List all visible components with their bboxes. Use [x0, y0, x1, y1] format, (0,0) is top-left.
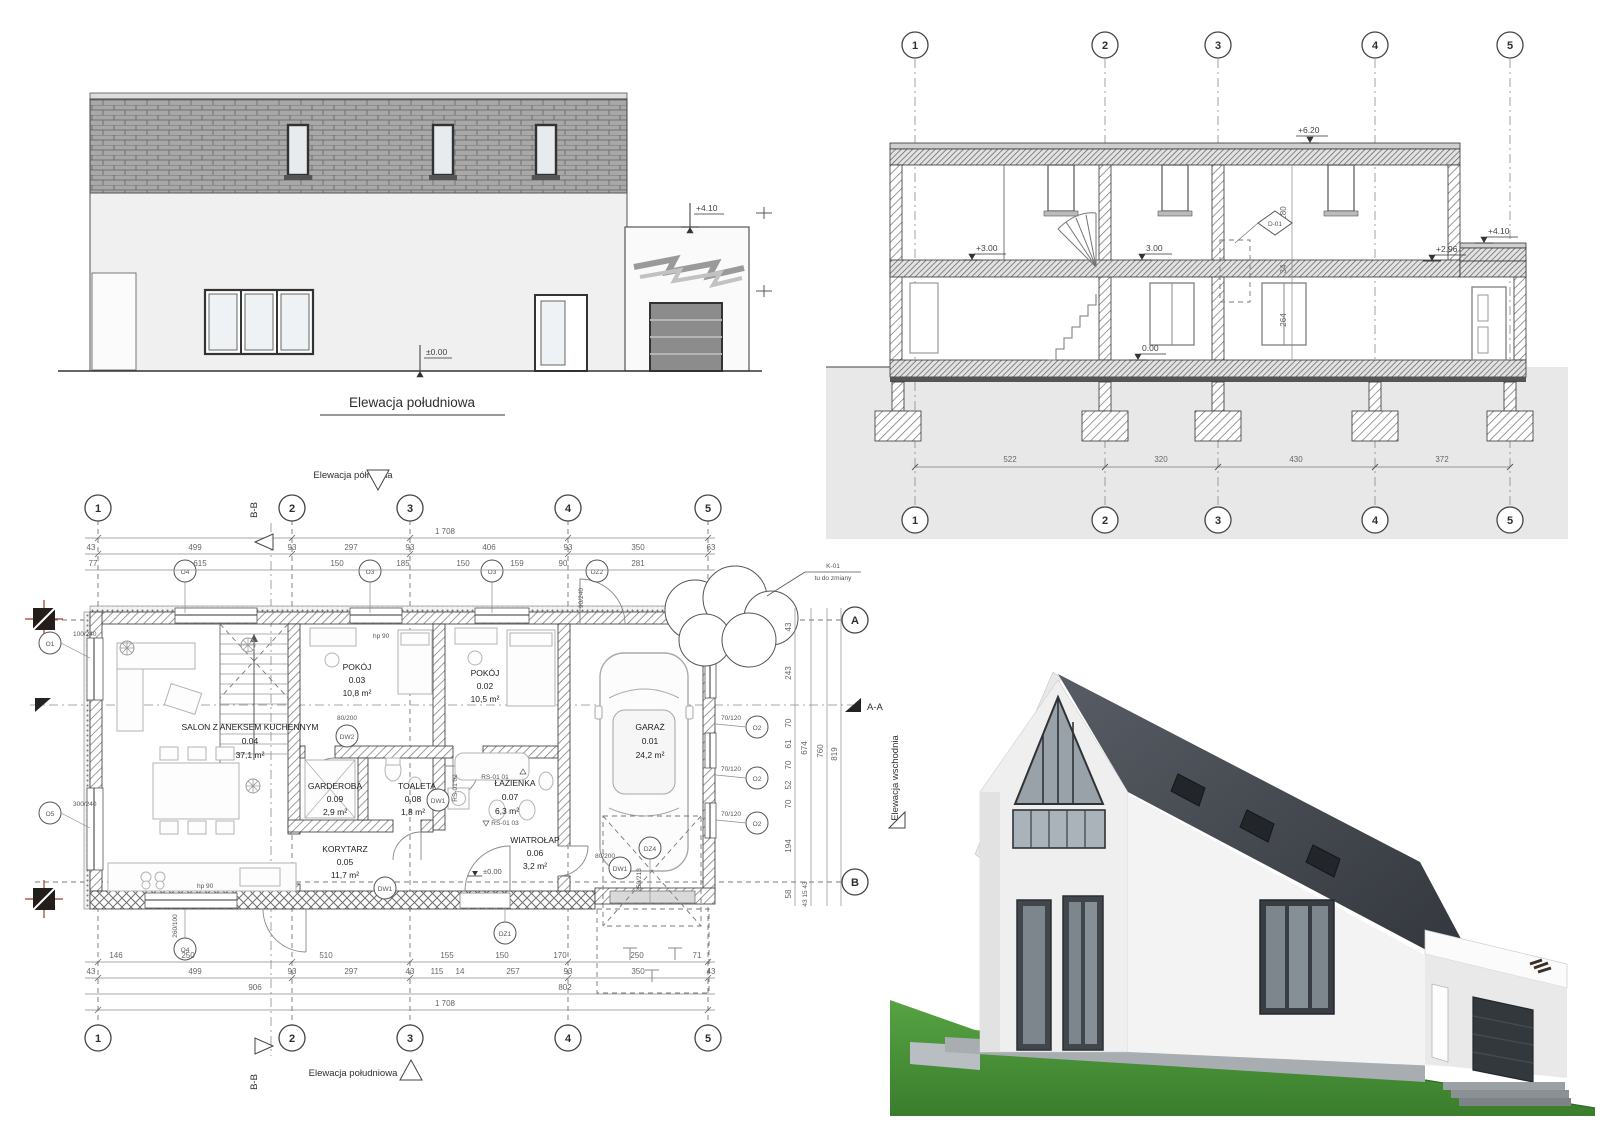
- render-annex-door: [1432, 984, 1448, 1062]
- grid-bubble-label: 4: [1372, 515, 1379, 527]
- dim: 43: [87, 543, 96, 552]
- room-num: 0.01: [642, 736, 659, 746]
- elevation-door: [535, 295, 587, 371]
- grid-bubble-label: 3: [1215, 40, 1221, 52]
- dim: 43 15 43: [802, 881, 809, 907]
- dim: 115: [431, 967, 444, 976]
- dim-total: 674: [800, 741, 809, 755]
- dim-total: 760: [816, 744, 825, 758]
- dim: 155: [440, 951, 454, 960]
- hdim-2: 320: [1154, 455, 1168, 464]
- render-house: [975, 672, 1571, 1106]
- door-marker: DW1: [613, 866, 628, 873]
- section-annex-roof: [1460, 248, 1526, 261]
- room-name: KORYTARZ: [322, 844, 368, 854]
- drawing-sheet: { "titles": { "elev_south": "Elewacja po…: [0, 0, 1600, 1118]
- grid-bubble-label: 1: [95, 503, 101, 515]
- dim: 510: [319, 951, 333, 960]
- door-marker: DW1: [378, 886, 393, 893]
- section-ground-mass: [826, 367, 1568, 539]
- dim: 93: [406, 543, 415, 552]
- dim: 43: [784, 622, 793, 631]
- window-size-tag: 100/240: [73, 631, 97, 638]
- dim: 14: [456, 967, 465, 976]
- rs-tag: RS-01 03: [491, 820, 519, 827]
- room-area: 6,3 m²: [495, 806, 519, 816]
- level-floor2-mid: 3.00: [1146, 243, 1163, 253]
- room-area: 11,7 m²: [331, 870, 359, 880]
- dim: 150: [456, 559, 470, 568]
- room-area: 3,2 m²: [523, 861, 547, 871]
- door-marker: DZ4: [644, 846, 657, 853]
- plan-dims-bottom: 146 250 510 155 150 170 250 71 43 499 93…: [85, 951, 716, 1013]
- dim: 43: [87, 967, 96, 976]
- grid-bubble-label: 5: [1507, 515, 1513, 527]
- dim: 297: [344, 543, 358, 552]
- grid-bubble-label: 4: [565, 503, 572, 515]
- vdim-lower: 264: [1279, 313, 1288, 327]
- dim: 43: [707, 967, 716, 976]
- dim: 499: [188, 967, 202, 976]
- grid-bubble-label: 3: [407, 503, 413, 515]
- room-name: GARDEROBA: [308, 781, 363, 791]
- room-num: 0.09: [327, 794, 344, 804]
- grid-bubble-label: 5: [1507, 40, 1513, 52]
- dim: 63: [707, 543, 716, 552]
- section-ground-windows: [910, 283, 1506, 360]
- dim-overall: 1 708: [435, 999, 456, 1008]
- elev-south-label: Elewacja południowa: [309, 1068, 398, 1079]
- window-marker: O2: [753, 725, 762, 732]
- dim: 77: [89, 559, 98, 568]
- dim: 499: [188, 543, 202, 552]
- room-num: 0.07: [502, 792, 519, 802]
- dim: 350: [631, 543, 645, 552]
- render-balcony-glass: [1013, 810, 1105, 848]
- section-stair: [1048, 213, 1096, 360]
- door-size-tag: 80/200: [337, 715, 357, 722]
- window-size-tag: 300/240: [73, 801, 97, 808]
- window-size-tag: 70/120: [721, 811, 741, 818]
- dim: 61: [784, 739, 793, 748]
- plan-dims-right: 43 243 70 61 70 52 70 194 58 674 760 819…: [784, 608, 841, 907]
- room-area: 1,8 m²: [401, 807, 425, 817]
- dim: 70: [784, 718, 793, 727]
- tree-note-code: K-01: [826, 563, 840, 570]
- section-aa-label: A-A: [867, 702, 884, 713]
- dim: 406: [482, 543, 496, 552]
- door-size-tag: 90/240: [578, 588, 585, 608]
- grid-bubble-label: 2: [1102, 40, 1108, 52]
- room-num: 0.08: [405, 794, 422, 804]
- dim: 170: [553, 951, 567, 960]
- grid-bubble-label: A: [851, 615, 859, 627]
- window-size-tag: 70/120: [721, 766, 741, 773]
- window-marker: O1: [46, 641, 55, 648]
- dim: 906: [248, 983, 262, 992]
- room-num: 0.06: [527, 848, 544, 858]
- room-area: 24,2 m²: [636, 750, 665, 760]
- vdim-slab: 34: [1279, 264, 1288, 273]
- dim: 90: [559, 559, 568, 568]
- rs-tag: RS-01 01: [481, 774, 509, 781]
- grid-bubble-label: 4: [565, 1033, 572, 1045]
- dim: 350: [631, 967, 645, 976]
- window-marker: O2: [753, 776, 762, 783]
- dim: 146: [109, 951, 123, 960]
- level-zero: 0.00: [1142, 343, 1159, 353]
- dim: 802: [558, 983, 572, 992]
- grid-bubble-label: B: [851, 877, 859, 889]
- room-num: 0.02: [477, 681, 494, 691]
- grid-bubble-label: 5: [705, 1033, 711, 1045]
- room-num: 0.05: [337, 857, 354, 867]
- grid-bubble-label: 1: [95, 1033, 101, 1045]
- section-upper-windows: [1004, 165, 1358, 260]
- dim: 615: [193, 559, 207, 568]
- dim: 297: [344, 967, 358, 976]
- dim-overall: 1 708: [435, 527, 456, 536]
- room-name: SALON Z ANEKSEM KUCHENNYM: [182, 722, 319, 732]
- section-roof-slab: [890, 149, 1460, 165]
- element-tag-label: D-01: [1268, 221, 1282, 228]
- hdim-4: 372: [1435, 455, 1449, 464]
- grid-bubble-label: 3: [1215, 515, 1221, 527]
- dim: 243: [784, 666, 793, 680]
- dim: 93: [564, 543, 573, 552]
- dim: 250: [181, 951, 195, 960]
- plan-level-zero-label: ±0.00: [483, 867, 502, 876]
- rs-tag: RS-01 02: [452, 774, 459, 802]
- tree-note-text: tu do zmiany: [815, 575, 853, 582]
- dim: 185: [396, 559, 410, 568]
- dim: 43: [406, 967, 415, 976]
- room-name: WIATROŁAP: [510, 835, 560, 845]
- section-mid-slab: [890, 260, 1460, 277]
- window-marker: O2: [753, 821, 762, 828]
- grid-bubble-label: 4: [1372, 40, 1379, 52]
- plan-level-zero: ±0.00: [468, 867, 502, 876]
- dim: 58: [784, 889, 793, 898]
- grid-bubble-label: 3: [407, 1033, 413, 1045]
- dim: 150: [330, 559, 344, 568]
- grid-bubble-label: 5: [705, 503, 711, 515]
- elevation-window-triple: [205, 290, 313, 354]
- dim: 257: [506, 967, 520, 976]
- room-area: 10,8 m²: [343, 688, 372, 698]
- door-marker: DW2: [340, 734, 355, 741]
- level-annex-top: +4.10: [1488, 226, 1510, 236]
- dim: 159: [510, 559, 524, 568]
- level-zero-label: ±0.00: [426, 347, 447, 357]
- room-area: 37,1 m²: [236, 750, 265, 760]
- dim: 70: [784, 760, 793, 769]
- grid-bubble-label: 2: [1102, 515, 1108, 527]
- grid-bubble-label: 1: [912, 40, 918, 52]
- window-size-tag: 70/120: [721, 715, 741, 722]
- dim: 52: [784, 780, 793, 789]
- room-name: POKÓJ: [471, 668, 500, 678]
- view-title: Elewacja południowa: [320, 395, 505, 415]
- dim: 93: [564, 967, 573, 976]
- dim: 194: [784, 839, 793, 853]
- room-name: GARAŻ: [635, 722, 664, 732]
- grid-bubble-label: 2: [289, 1033, 295, 1045]
- hp-tag: hp 90: [373, 633, 390, 640]
- hdim-1: 522: [1003, 455, 1017, 464]
- dim: 93: [288, 543, 297, 552]
- section-ground-slab: [890, 360, 1526, 377]
- section-bb-label: B-B: [249, 502, 260, 518]
- view-section: +6.20 +4.10 +3.00 3.00 +2.96 0.00 280 34…: [820, 15, 1590, 560]
- elevation-garage-door: [650, 303, 722, 371]
- hp-tag: hp 90: [197, 883, 214, 890]
- dim: 71: [693, 951, 702, 960]
- door-size-tag: 80/200: [595, 853, 615, 860]
- dim: 70: [784, 799, 793, 808]
- section-bb-label: B-B: [249, 1074, 260, 1090]
- dim: 250: [630, 951, 644, 960]
- room-name: POKÓJ: [343, 662, 372, 672]
- edge-ticks: [756, 207, 772, 297]
- view-elevation-south: +4.10 ±0.00 Elewacja południowa: [20, 15, 780, 443]
- room-num: 0.03: [349, 675, 366, 685]
- door-size-tag: 250/213: [636, 868, 643, 892]
- level-annex-floor: +2.96: [1436, 244, 1458, 254]
- room-area: 2,9 m²: [323, 807, 347, 817]
- door-marker: DZ1: [499, 931, 512, 938]
- dim: 93: [288, 967, 297, 976]
- room-num: 0.04: [242, 736, 259, 746]
- hdim-3: 430: [1289, 455, 1303, 464]
- dim-total: 819: [830, 747, 839, 761]
- window-size-tag: 260/100: [172, 914, 179, 938]
- window-marker: O5: [46, 811, 55, 818]
- level-roof: +6.20: [1298, 125, 1320, 135]
- dim: 281: [631, 559, 645, 568]
- level-floor2-left: +3.00: [976, 243, 998, 253]
- view-3d-render: [885, 612, 1597, 1117]
- grid-bubble-label: 2: [289, 503, 295, 515]
- view-floor-plan: K-01 tu do zmiany SALON Z ANEKSEM KUCHEN…: [5, 448, 920, 1113]
- door-marker: DW1: [431, 798, 446, 805]
- room-area: 10,5 m²: [471, 694, 500, 704]
- level-top-label: +4.10: [696, 203, 718, 213]
- elevation-south-title: Elewacja południowa: [349, 395, 476, 410]
- room-name: TOALETA: [398, 781, 436, 791]
- dim: 150: [495, 951, 509, 960]
